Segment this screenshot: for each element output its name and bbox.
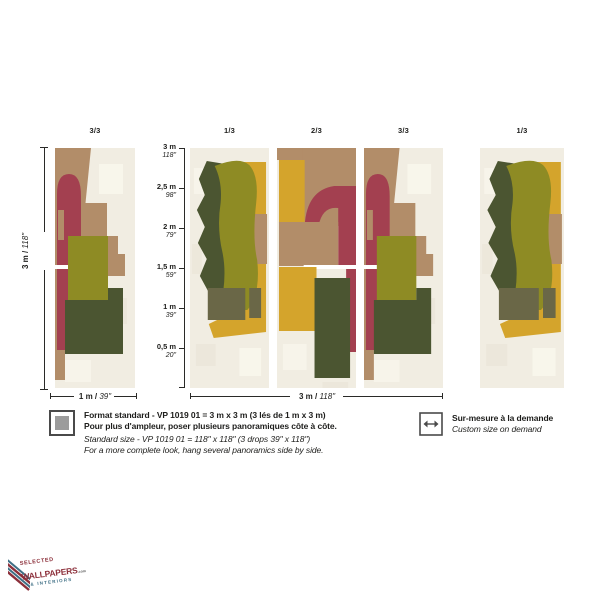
scale-imperial: 79" [134, 232, 176, 241]
scale-metric: 1,5 m [134, 263, 176, 272]
panel-panoramic-drop3 [364, 148, 443, 388]
scale-label-1-5m: 1,5 m 59" [134, 263, 176, 280]
scale-tick [179, 188, 184, 189]
height-dimension-label: 3 m / 118" [21, 201, 33, 301]
selected-wallpapers-logo: SELECTED WALLPAPERS.com & INTERIORS [8, 550, 78, 598]
single-width-dimension-label: 1 m / 39" [55, 392, 135, 401]
scale-label-2m: 2 m 79" [134, 223, 176, 240]
custom-size-text: Sur-mesure à la demande Custom size on d… [452, 413, 553, 434]
full-width-dimension-line [190, 396, 290, 397]
scale-metric: 1 m [134, 303, 176, 312]
scale-imperial: 39" [134, 312, 176, 321]
scale-label-2-5m: 2,5 m 98" [134, 183, 176, 200]
full-width-metric: 3 m / [299, 392, 317, 401]
standard-size-en-line2: For a more complete look, hang several p… [84, 445, 337, 456]
standard-size-fr-line2: Pour plus d'ampleur, poser plusieurs pan… [84, 421, 337, 432]
custom-size-fr: Sur-mesure à la demande [452, 413, 553, 424]
standard-size-fr-line1: Format standard - VP 1019 01 = 3 m x 3 m… [84, 410, 337, 421]
full-width-dimension-label: 3 m / 118" [277, 392, 357, 401]
drop-label-left: 3/3 [55, 126, 135, 136]
scale-tick [179, 228, 184, 229]
logo-text: SELECTED WALLPAPERS.com & INTERIORS [20, 554, 87, 588]
scale-metric: 2 m [134, 223, 176, 232]
scale-imperial: 59" [134, 272, 176, 281]
scale-tick [179, 148, 184, 149]
scale-tick [179, 348, 184, 349]
panel-panoramic-drop2 [277, 148, 356, 388]
scale-tick [179, 387, 184, 388]
scale-imperial: 98" [134, 192, 176, 201]
scale-tick [179, 268, 184, 269]
single-width-dimension-tick [50, 393, 51, 399]
height-dimension-line [44, 147, 45, 232]
panel-single-drop13 [480, 148, 564, 388]
scale-metric: 2,5 m [134, 183, 176, 192]
scale-tick [179, 308, 184, 309]
panel-panoramic-drop1 [190, 148, 269, 388]
standard-size-en-line1: Standard size - VP 1019 01 = 118" x 118"… [84, 434, 337, 445]
height-dimension-line [44, 270, 45, 390]
full-width-dimension-tick [190, 393, 191, 399]
drop-label-right: 1/3 [480, 126, 564, 136]
custom-size-en: Custom size on demand [452, 424, 553, 435]
scale-metric: 3 m [134, 143, 176, 152]
wallpaper-size-diagram: 3/3 1/3 2/3 3/3 1/3 3 m / 118" 3 m 118" … [0, 0, 600, 600]
drop-label-mid2: 2/3 [277, 126, 356, 136]
scale-label-0-5m: 0,5 m 20" [134, 343, 176, 360]
scale-metric: 0,5 m [134, 343, 176, 352]
standard-size-text: Format standard - VP 1019 01 = 3 m x 3 m… [84, 410, 337, 455]
height-dimension-tick [40, 147, 48, 148]
full-width-imperial: 118" [319, 392, 335, 401]
scale-label-3m: 3 m 118" [134, 143, 176, 160]
height-imperial: 118" [21, 233, 30, 249]
single-width-metric: 1 m / [79, 392, 97, 401]
standard-size-icon [49, 410, 75, 436]
scale-imperial: 20" [134, 352, 176, 361]
single-width-dimension-tick [136, 393, 137, 399]
standard-size-icon-fill [55, 416, 69, 430]
full-width-dimension-tick [442, 393, 443, 399]
panel-single-drop33 [55, 148, 135, 388]
height-dimension-tick [40, 389, 48, 390]
scale-label-1m: 1 m 39" [134, 303, 176, 320]
scale-imperial: 118" [134, 152, 176, 161]
height-metric: 3 m / [21, 251, 30, 269]
custom-size-arrow-icon [419, 412, 443, 436]
logo-suffix-com: .com [77, 569, 86, 574]
scale-axis-line [184, 148, 185, 388]
single-width-imperial: 39" [99, 392, 111, 401]
full-width-dimension-line [343, 396, 443, 397]
drop-label-mid3: 3/3 [364, 126, 443, 136]
drop-label-mid1: 1/3 [190, 126, 269, 136]
